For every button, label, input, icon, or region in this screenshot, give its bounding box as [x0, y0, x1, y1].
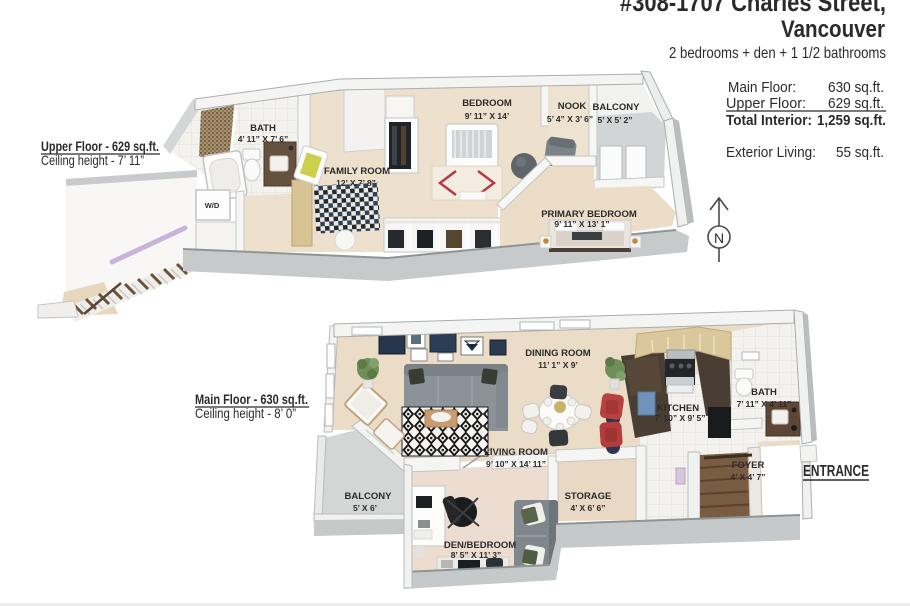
- svg-text:5’ 4” X 3’ 6”: 5’ 4” X 3’ 6”: [547, 114, 593, 124]
- svg-text:Vancouver: Vancouver: [781, 16, 885, 43]
- svg-text:DINING ROOM: DINING ROOM: [525, 348, 591, 359]
- svg-text:W/D: W/D: [205, 201, 220, 210]
- svg-text:11’ 1” X 9’: 11’ 1” X 9’: [538, 360, 578, 370]
- svg-text:Exterior Living:: Exterior Living:: [726, 144, 816, 161]
- svg-text:Total Interior:: Total Interior:: [726, 112, 812, 129]
- svg-text:STORAGE: STORAGE: [565, 491, 612, 502]
- svg-text:#308-1707 Charles Street,: #308-1707 Charles Street,: [620, 0, 886, 17]
- svg-text:2 bedrooms + den + 1 1/2 bathr: 2 bedrooms + den + 1 1/2 bathrooms: [669, 45, 886, 62]
- svg-text:4’ X 4’ 7”: 4’ X 4’ 7”: [731, 472, 766, 482]
- svg-text:5’ X 6’: 5’ X 6’: [353, 503, 377, 513]
- svg-text:12’ X 7’ 8”: 12’ X 7’ 8”: [336, 178, 376, 188]
- svg-text:4’ X 6’ 6”: 4’ X 6’ 6”: [571, 503, 606, 513]
- svg-text:BEDROOM: BEDROOM: [462, 98, 512, 109]
- svg-text:Upper Floor:: Upper Floor:: [726, 95, 806, 112]
- svg-text:NOOK: NOOK: [558, 101, 587, 112]
- svg-text:4’ 11” X 7’ 6”: 4’ 11” X 7’ 6”: [238, 134, 289, 144]
- svg-text:FOYER: FOYER: [732, 460, 765, 471]
- svg-text:Ceiling height - 7’ 11”: Ceiling height - 7’ 11”: [41, 152, 144, 168]
- svg-text:9’ 10” X 14’ 11”: 9’ 10” X 14’ 11”: [486, 459, 546, 469]
- svg-text:Ceiling height - 8’ 0”: Ceiling height - 8’ 0”: [195, 405, 296, 421]
- svg-text:ENTRANCE: ENTRANCE: [803, 463, 869, 480]
- svg-text:FAMILY ROOM: FAMILY ROOM: [324, 166, 390, 177]
- svg-text:9’ 11” X 13’ 1”: 9’ 11” X 13’ 1”: [554, 219, 609, 229]
- svg-text:BATH: BATH: [751, 387, 777, 398]
- svg-text:7’ 11” X 4’ 11”: 7’ 11” X 4’ 11”: [737, 399, 792, 409]
- svg-text:8’ 5” X 11’ 3”: 8’ 5” X 11’ 3”: [451, 550, 502, 560]
- svg-text:Main Floor:: Main Floor:: [728, 79, 796, 96]
- svg-text:N: N: [714, 230, 724, 246]
- svg-text:629 sq.ft.: 629 sq.ft.: [828, 95, 884, 112]
- svg-text:BALCONY: BALCONY: [345, 491, 393, 502]
- svg-text:9’ 11” X 14’: 9’ 11” X 14’: [465, 111, 509, 121]
- svg-text:630 sq.ft.: 630 sq.ft.: [828, 79, 884, 96]
- svg-text:LIVING ROOM: LIVING ROOM: [484, 447, 548, 458]
- svg-text:55 sq.ft.: 55 sq.ft.: [836, 144, 884, 161]
- svg-text:7’ 10” X 9’ 5”: 7’ 10” X 9’ 5”: [654, 413, 705, 423]
- svg-text:BALCONY: BALCONY: [593, 102, 641, 113]
- svg-text:1,259 sq.ft.: 1,259 sq.ft.: [817, 112, 886, 129]
- svg-text:5’ X 5’ 2”: 5’ X 5’ 2”: [598, 115, 633, 125]
- svg-text:BATH: BATH: [250, 123, 276, 134]
